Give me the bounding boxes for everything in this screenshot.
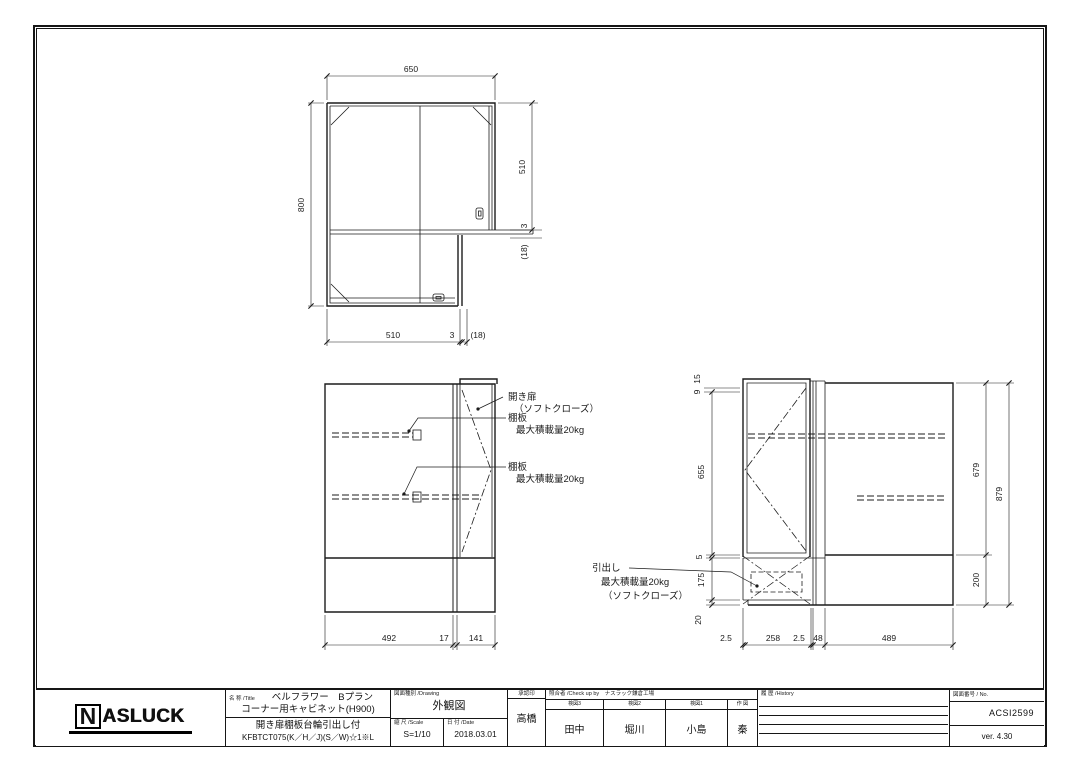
check-col-3-label: 検図3 xyxy=(546,700,603,710)
drawing-version: ver. 4.30 xyxy=(950,726,1044,746)
drawing-number-cell: 図面番号 / No. ACSI2599 ver. 4.30 xyxy=(949,690,1044,746)
drawing-type-value: 外観図 xyxy=(391,698,507,714)
check-col-1: 検図1 小島 xyxy=(665,700,727,746)
check-col-2-label: 検図2 xyxy=(604,700,665,710)
date-header: 日 付 /Date xyxy=(444,719,507,727)
check-col-3-name: 田中 xyxy=(546,710,603,746)
date-cell: 日 付 /Date 2018.03.01 xyxy=(443,719,507,746)
history-rule xyxy=(759,716,948,725)
check-col-draft-label: 作 図 xyxy=(728,700,757,710)
history-rule xyxy=(759,698,948,707)
check-col-1-name: 小島 xyxy=(666,710,727,746)
history-rule xyxy=(759,725,948,734)
product-series: ベルフラワー Bプラン xyxy=(255,689,390,703)
product-name: コーナー用キャビネット(H900) xyxy=(226,703,390,718)
logo-text: ASLUCK xyxy=(102,706,184,727)
title-cell: 名 称 /Title ベルフラワー Bプラン コーナー用キャビネット(H900)… xyxy=(225,690,390,746)
logo-cell: NASLUCK xyxy=(36,690,225,746)
approval-header: 承認印 xyxy=(508,690,545,699)
history-cell: 履 歴 /History xyxy=(757,690,949,746)
title-block: NASLUCK 名 称 /Title ベルフラワー Bプラン コーナー用キャビネ… xyxy=(36,688,1044,746)
drawing-type-cell: 図面種別 /Drawing 外観図 縮 尺 /Scale S=1/10 日 付 … xyxy=(390,690,507,746)
scale-header: 縮 尺 /Scale xyxy=(391,719,443,727)
scale-cell: 縮 尺 /Scale S=1/10 xyxy=(391,719,443,746)
title-header: 名 称 /Title xyxy=(226,695,255,703)
date-value: 2018.03.01 xyxy=(444,727,507,741)
drawing-number-value: ACSI2599 xyxy=(950,702,1044,726)
drawing-sheet: 650 800 510 3 (18) 510 3 (18) xyxy=(0,0,1080,764)
check-cell: 照合者 /Check up by ナスラック鎌倉工場 検図3 田中 検図2 堀川… xyxy=(545,690,757,746)
check-header: 照合者 /Check up by ナスラック鎌倉工場 xyxy=(546,690,757,700)
logo-letter-n: N xyxy=(75,704,102,729)
scale-value: S=1/10 xyxy=(391,727,443,741)
nasluck-logo: NASLUCK xyxy=(69,703,193,734)
drawing-number-header: 図面番号 / No. xyxy=(950,690,1044,702)
sheet-border xyxy=(33,25,1047,747)
approval-name: 高橋 xyxy=(508,699,545,741)
product-spec: 開き扉棚板台輪引出し付 xyxy=(226,718,390,732)
check-col-1-label: 検図1 xyxy=(666,700,727,710)
check-col-2: 検図2 堀川 xyxy=(603,700,665,746)
history-rule xyxy=(759,707,948,716)
check-col-2-name: 堀川 xyxy=(604,710,665,746)
history-header: 履 歴 /History xyxy=(758,690,949,698)
drawing-type-header: 図面種別 /Drawing xyxy=(391,690,507,698)
approval-cell: 承認印 高橋 xyxy=(507,690,545,746)
check-col-draft: 作 図 秦 xyxy=(727,700,757,746)
check-col-draft-name: 秦 xyxy=(728,710,757,746)
check-col-3: 検図3 田中 xyxy=(546,700,603,746)
product-code: KFBTCT075(K／H／J)(S／W)☆1※L xyxy=(226,732,390,745)
